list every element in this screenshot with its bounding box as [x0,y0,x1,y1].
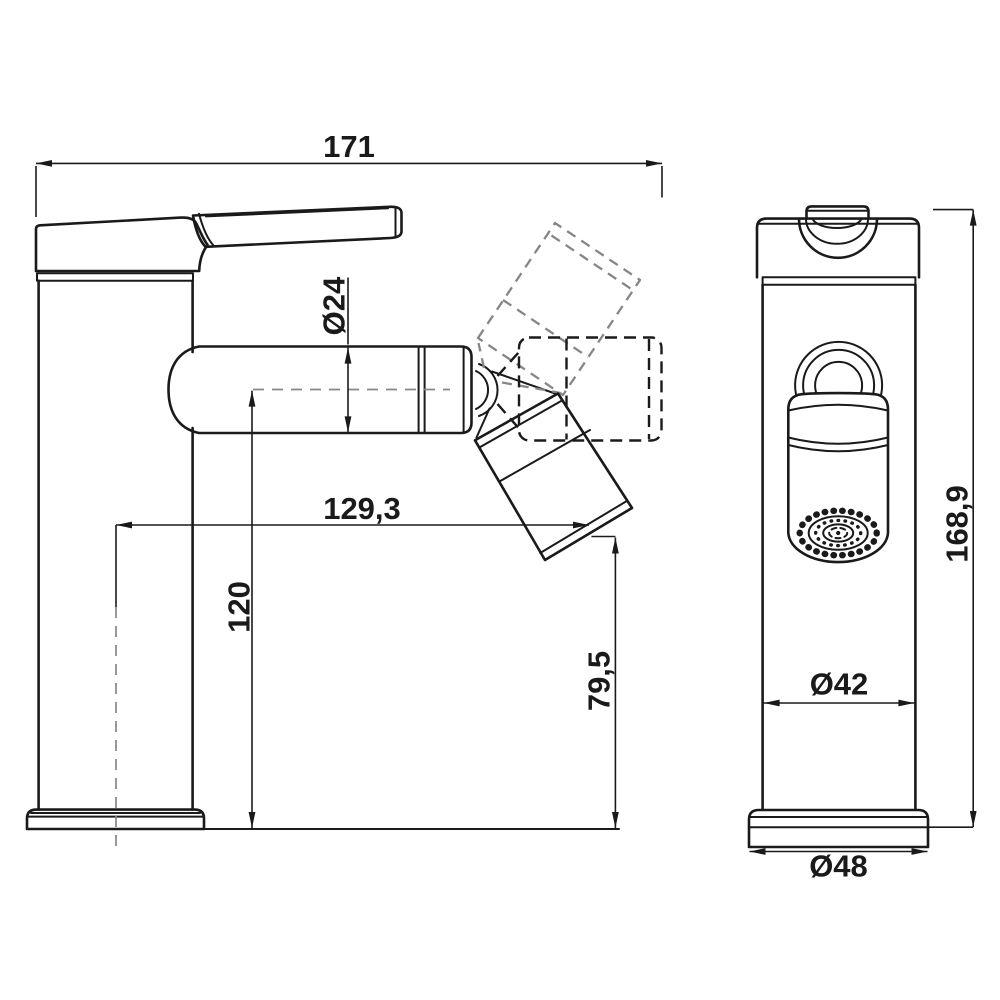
body-top-ring [37,273,193,281]
faucet-technical-drawing: 171 Ø24 129,3 120 79,5 168,9 [0,0,1000,1000]
base-diameter-label: Ø48 [809,849,868,884]
body-top-ring-front [763,277,916,284]
dim-outlet-height: 79,5 [582,537,617,829]
spout-center-height-label: 120 [222,581,257,633]
overall-length-label: 171 [323,129,375,164]
body-diameter-label: Ø42 [810,667,869,702]
dim-spout-diameter: Ø24 [317,276,352,432]
dim-base-diameter: Ø48 [750,849,928,884]
dim-spout-center-height: 120 [222,391,257,828]
nozzle-solid [475,394,632,561]
dim-body-diameter: Ø42 [764,667,915,704]
aerator-front [788,342,888,562]
front-view [749,206,928,847]
handle-lever [193,207,402,247]
lever-top-edge-line [206,208,388,216]
dim-overall-length: 171 [36,129,662,217]
spout-reach-label: 129,3 [323,491,401,526]
nozzle-body-front [788,393,888,562]
spout-diameter-label: Ø24 [317,276,352,335]
dim-overall-height: 168,9 [928,210,975,828]
dim-spout-reach: 129,3 [116,491,589,526]
base-flange-front [749,810,928,847]
outlet-height-label: 79,5 [582,651,617,711]
overall-height-label: 168,9 [940,485,975,563]
spout [169,347,472,434]
handle-front [757,206,919,277]
technical-drawing-page: 171 Ø24 129,3 120 79,5 168,9 [0,0,1000,1000]
handle-base [36,218,208,271]
